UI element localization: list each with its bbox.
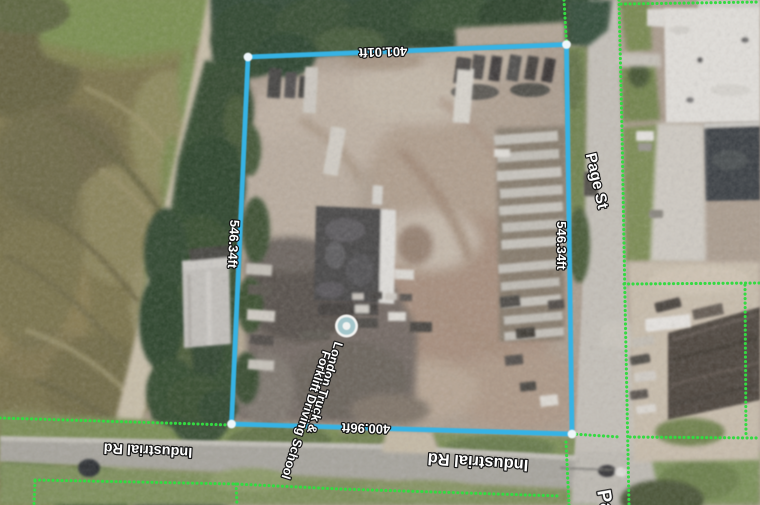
svg-text:546.34ft: 546.34ft	[554, 221, 569, 270]
svg-text:401.01ft: 401.01ft	[358, 44, 408, 61]
svg-text:400.96ft: 400.96ft	[341, 420, 391, 437]
svg-text:546.34ft: 546.34ft	[225, 219, 243, 269]
